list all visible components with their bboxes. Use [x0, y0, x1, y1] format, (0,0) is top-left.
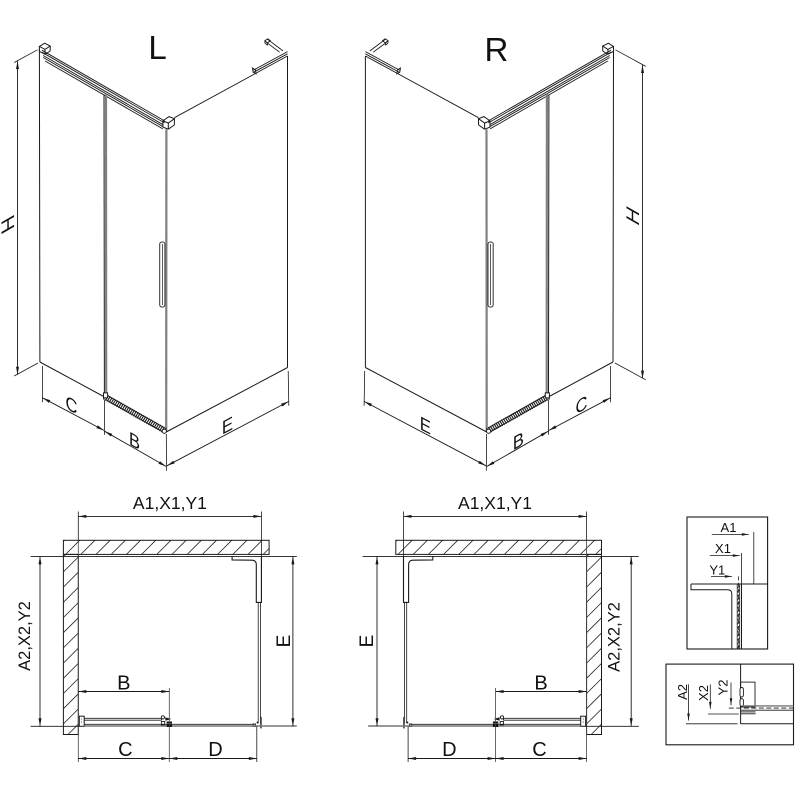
svg-text:E: E: [274, 635, 295, 648]
svg-text:C: C: [532, 739, 546, 761]
svg-text:X2: X2: [696, 685, 711, 701]
svg-text:E: E: [357, 635, 378, 648]
svg-text:Y1: Y1: [709, 562, 725, 577]
svg-text:R: R: [484, 31, 508, 68]
svg-text:C: C: [118, 739, 132, 761]
svg-text:A2,X2,Y2: A2,X2,Y2: [16, 601, 34, 671]
svg-text:Y2: Y2: [716, 680, 731, 696]
svg-text:X1: X1: [715, 541, 731, 556]
svg-text:B: B: [534, 672, 547, 694]
svg-text:D: D: [442, 739, 456, 761]
svg-text:A2: A2: [675, 684, 690, 700]
svg-text:A1: A1: [721, 520, 737, 535]
svg-text:A2,X2,Y2: A2,X2,Y2: [606, 602, 624, 672]
svg-text:D: D: [208, 739, 222, 761]
svg-text:L: L: [148, 29, 166, 66]
svg-text:A1,X1,Y1: A1,X1,Y1: [458, 493, 532, 513]
svg-text:B: B: [117, 672, 130, 694]
svg-text:A1,X1,Y1: A1,X1,Y1: [133, 493, 207, 513]
